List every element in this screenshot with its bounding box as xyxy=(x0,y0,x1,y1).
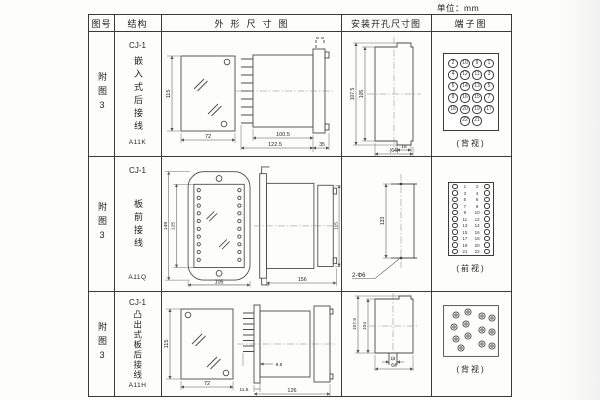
side-view: 11.5 9.5 126 xyxy=(237,305,337,396)
header-outline: 外形尺寸图 xyxy=(161,15,341,31)
terminal-dot xyxy=(238,235,241,238)
terminal-dot xyxy=(197,227,200,230)
terminal-circle: 4 xyxy=(448,70,458,80)
terminal-number: 17 xyxy=(460,236,470,241)
dim-total-length: 122.5 xyxy=(268,142,282,148)
outline-diagram-a11h: 115 72 11.5 xyxy=(161,291,341,396)
fig-no-label: 附图3 xyxy=(97,72,106,115)
cell-mounting-a11h: 107.5 104 14 64 xyxy=(341,291,431,396)
terminal-dot xyxy=(465,333,471,339)
terminal-circle: 13 xyxy=(472,82,482,92)
terminal-number: 13 xyxy=(460,223,470,228)
dim-front-width: 72 xyxy=(204,381,210,387)
terminal-dot xyxy=(238,219,241,222)
terminal-view-label: (前视) xyxy=(456,263,485,274)
header-terminal: 端子图 xyxy=(431,15,511,31)
latch-hook-icon xyxy=(316,38,324,48)
cell-terminal-a11q: 12345678910111213141516171819202122 (前视) xyxy=(431,156,511,291)
terminal-circle xyxy=(484,249,490,255)
mount-type-label: 嵌入式后接线 xyxy=(133,56,142,134)
terminal-dot xyxy=(479,313,485,319)
cell-terminal-a11h: (背视) xyxy=(431,291,511,396)
terminal-circle: 9 xyxy=(472,59,482,69)
terminal-circle xyxy=(484,203,490,209)
terminal-circle: 10 xyxy=(460,59,470,69)
terminal-circle xyxy=(452,242,458,248)
terminal-number: 20 xyxy=(472,243,482,248)
terminal-number: 11 xyxy=(460,217,470,222)
terminal-number: 18 xyxy=(472,236,482,241)
terminal-circle xyxy=(452,190,458,196)
terminal-pins xyxy=(243,313,254,352)
terminal-row: 34 xyxy=(449,190,493,196)
dim-hole-spacing: 133 xyxy=(380,217,386,226)
terminal-row: 1516 xyxy=(449,229,493,235)
datasheet-page: { "unit_label": "单位：mm", "headers": { "f… xyxy=(0,0,600,400)
terminal-block: 21091412113614135816157182019172221 xyxy=(443,53,499,131)
terminal-circle: 6 xyxy=(448,82,458,92)
side-view: 156 115 xyxy=(254,167,341,286)
terminal-block xyxy=(443,305,499,357)
cell-fig-no-a11q: 附图3 xyxy=(89,156,114,291)
model-code-label: A11K xyxy=(129,139,146,146)
terminal-number: 9 xyxy=(460,210,470,215)
terminal-dot xyxy=(238,188,241,191)
terminal-circle xyxy=(452,229,458,235)
terminal-number: 1 xyxy=(460,184,470,189)
outline-diagram-a11q: 149 125 105 xyxy=(161,158,341,289)
terminal-view-label: (背视) xyxy=(456,138,485,149)
dim-side-length: 156 xyxy=(298,277,307,283)
cell-fig-no-a11k: 附图3 xyxy=(89,31,114,156)
window-hatch-icon xyxy=(207,357,221,369)
dim-front-width: 72 xyxy=(205,134,211,140)
terminal-circle: 19 xyxy=(472,105,482,115)
terminal-dot xyxy=(453,336,459,342)
terminal-number: 4 xyxy=(472,191,482,196)
spec-table: 图号 结构 外形尺寸图 安装开孔尺寸图 端子图 附图3 CJ-1 嵌入式后接线 … xyxy=(88,14,512,397)
terminal-dot xyxy=(451,324,457,330)
terminal-dot xyxy=(238,196,241,199)
terminal-circle: 2 xyxy=(448,59,458,69)
terminal-circle: 12 xyxy=(460,70,470,80)
terminal-circle xyxy=(452,249,458,255)
mounting-hole-icon xyxy=(400,183,403,186)
terminal-dot xyxy=(453,312,459,318)
screw-hole-icon xyxy=(223,370,229,376)
screw-hole-icon xyxy=(185,312,191,318)
mount-type-label: 板前接线 xyxy=(133,199,142,251)
terminal-circle xyxy=(452,210,458,216)
terminal-dot xyxy=(197,212,200,215)
mounting-hole-icon xyxy=(400,257,403,260)
terminal-circle xyxy=(484,190,490,196)
terminal-circle xyxy=(452,236,458,242)
terminal-number: 22 xyxy=(472,249,482,254)
terminal-circle xyxy=(484,184,490,190)
terminal-dot xyxy=(197,196,200,199)
terminal-row: 412113 xyxy=(444,70,498,80)
terminal-circle: 20 xyxy=(460,105,470,115)
terminal-circle: 14 xyxy=(460,82,470,92)
window-hatch-icon xyxy=(194,79,208,91)
terminal-dot xyxy=(463,321,469,327)
dim-total-width: 64 xyxy=(391,363,397,369)
terminal-row: 1920 xyxy=(449,242,493,248)
terminal-circle xyxy=(484,229,490,235)
terminal-row: 2122 xyxy=(449,249,493,255)
terminal-circle: 16 xyxy=(460,93,470,103)
terminal-dot xyxy=(197,188,200,191)
model-label: CJ-1 xyxy=(129,41,146,50)
terminal-circle: 15 xyxy=(472,93,482,103)
dim-front-height: 115 xyxy=(166,90,172,99)
terminal-row: 1718 xyxy=(449,236,493,242)
terminal-circle: 18 xyxy=(448,105,458,115)
terminal-dot xyxy=(238,204,241,207)
hole-size-label: 2-Φ6 xyxy=(352,273,366,279)
terminal-circle: 8 xyxy=(448,93,458,103)
terminal-number: 14 xyxy=(472,223,482,228)
side-view: 100.5 122.5 35 xyxy=(235,38,335,152)
terminal-circle xyxy=(452,223,458,229)
terminal-row: 1112 xyxy=(449,216,493,222)
dim-outer-height: 107.5 xyxy=(350,88,356,101)
terminal-circle: 7 xyxy=(484,93,494,103)
terminal-dot xyxy=(197,243,200,246)
terminal-circle xyxy=(452,216,458,222)
dim-pin-length: 9.5 xyxy=(276,362,283,368)
model-code-label: A11Q xyxy=(128,274,146,281)
screw-hole-icon xyxy=(224,59,230,65)
header-mounting: 安装开孔尺寸图 xyxy=(341,15,431,31)
terminal-dot xyxy=(238,250,241,253)
terminal-dot xyxy=(479,341,485,347)
terminal-circle xyxy=(484,197,490,203)
dim-front-width: 105 xyxy=(215,280,224,286)
front-view: 115 72 xyxy=(166,56,235,143)
terminal-row: 910 xyxy=(449,210,493,216)
model-label: CJ-1 xyxy=(129,298,146,307)
terminal-number: 6 xyxy=(472,197,482,202)
terminal-number: 21 xyxy=(460,249,470,254)
screw-hole-icon xyxy=(216,176,222,182)
terminal-number: 7 xyxy=(460,204,470,209)
unit-label: 单位：mm xyxy=(437,2,479,14)
terminal-circle: 1 xyxy=(484,59,494,69)
mounting-diagram-a11h: 107.5 104 14 64 xyxy=(341,291,431,396)
terminal-number: 19 xyxy=(460,243,470,248)
terminal-dot xyxy=(238,243,241,246)
terminal-circle xyxy=(452,184,458,190)
dim-body-length: 100.5 xyxy=(276,132,290,138)
screw-hole-icon xyxy=(216,270,222,276)
terminal-dot xyxy=(197,204,200,207)
terminal-number: 12 xyxy=(472,217,482,222)
dim-total-width: (64) xyxy=(390,148,399,154)
fig-no-label: 附图3 xyxy=(97,202,106,245)
terminal-row: 816157 xyxy=(444,93,498,103)
mounting-diagram-a11q: 133 2-Φ6 xyxy=(341,156,431,291)
header-structure: 结构 xyxy=(114,15,161,31)
cell-mounting-a11q: 133 2-Φ6 xyxy=(341,156,431,291)
dim-outer-height: 107.5 xyxy=(352,318,358,330)
terminal-row: 2221 xyxy=(444,116,498,126)
terminal-dot xyxy=(489,329,495,335)
terminal-row: 1314 xyxy=(449,223,493,229)
window-hatch-icon xyxy=(219,239,230,249)
terminal-row: 56 xyxy=(449,197,493,203)
terminal-number: 8 xyxy=(472,204,482,209)
cell-fig-no-a11h: 附图3 xyxy=(89,291,114,396)
dim-inner-height: 104 xyxy=(362,322,368,330)
terminal-number: 5 xyxy=(460,197,470,202)
terminal-circle xyxy=(484,236,490,242)
terminal-dot xyxy=(479,327,485,333)
front-view: 149 125 105 xyxy=(163,172,250,287)
terminal-row: 12 xyxy=(449,184,493,190)
terminal-circle xyxy=(452,203,458,209)
terminal-dot xyxy=(465,309,471,315)
terminal-dot xyxy=(238,258,241,261)
terminal-circle: 11 xyxy=(472,70,482,80)
terminal-dot xyxy=(197,258,200,261)
terminal-dot xyxy=(489,315,495,321)
terminal-dot xyxy=(489,343,495,349)
terminal-circle: 21 xyxy=(472,116,482,126)
dim-front-height: 115 xyxy=(164,340,170,349)
terminal-block: 12345678910111213141516171819202122 xyxy=(448,182,494,256)
cell-structure-a11q: CJ-1 板前接线 A11Q xyxy=(114,156,161,291)
terminal-row: 18201917 xyxy=(444,105,498,115)
terminal-circle xyxy=(484,242,490,248)
cell-terminal-a11k: 21091412113614135816157182019172221 (背视) xyxy=(431,31,511,156)
terminal-number: 2 xyxy=(472,184,482,189)
cell-mounting-a11k: 107.5 105 16 (64) xyxy=(341,31,431,156)
window-hatch-icon xyxy=(206,211,217,221)
terminal-dot xyxy=(458,345,464,351)
dim-slot-width: 14 xyxy=(390,356,396,361)
terminal-circle xyxy=(484,216,490,222)
terminal-dot xyxy=(238,212,241,215)
dim-inner-height: 105 xyxy=(359,90,365,99)
terminal-circle: 17 xyxy=(484,105,494,115)
cell-structure-a11h: CJ-1 凸出式板后接线 A11H xyxy=(114,291,161,396)
screw-hole-icon xyxy=(221,121,227,127)
front-view: 115 72 xyxy=(164,309,233,390)
terminal-number: 16 xyxy=(472,230,482,235)
terminal-row: 78 xyxy=(449,203,493,209)
terminal-dot xyxy=(197,219,200,222)
cell-outline-a11h: 115 72 11.5 xyxy=(161,291,341,396)
terminal-number: 3 xyxy=(460,191,470,196)
terminal-circle: 3 xyxy=(484,70,494,80)
dim-tab-width: 16 xyxy=(401,144,407,150)
terminal-row: 614135 xyxy=(444,82,498,92)
terminal-number: 15 xyxy=(460,230,470,235)
terminal-circle: 22 xyxy=(460,116,470,126)
terminal-row: 21091 xyxy=(444,59,498,69)
terminal-dot xyxy=(197,235,200,238)
window-hatch-icon xyxy=(192,334,206,346)
cell-outline-a11k: 115 72 100.5 xyxy=(161,31,341,156)
cell-outline-a11q: 149 125 105 xyxy=(161,156,341,291)
mount-type-label: 凸出式板后接线 xyxy=(133,310,142,380)
mounting-diagram-a11k: 107.5 105 16 (64) xyxy=(341,31,431,156)
dim-total-length: 126 xyxy=(287,388,296,394)
terminal-dot xyxy=(197,250,200,253)
dim-plate-thickness: 11.5 xyxy=(240,387,249,393)
header-fig-no: 图号 xyxy=(89,15,114,31)
terminal-circle xyxy=(452,197,458,203)
terminal-number: 10 xyxy=(472,210,482,215)
model-label: CJ-1 xyxy=(129,166,146,175)
fig-no-label: 附图3 xyxy=(97,322,106,365)
terminal-circle xyxy=(484,223,490,229)
outline-diagram-a11k: 115 72 100.5 xyxy=(161,31,341,156)
model-code-label: A11H xyxy=(129,382,147,389)
dim-inner-height: 125 xyxy=(171,222,177,230)
dim-outer-height: 149 xyxy=(163,222,169,230)
dim-flange-width: 35 xyxy=(319,142,325,148)
window-hatch-icon xyxy=(208,104,222,116)
terminal-view-label: (背视) xyxy=(456,364,485,375)
terminal-dot xyxy=(238,227,241,230)
terminal-circle xyxy=(484,210,490,216)
terminal-circle: 5 xyxy=(484,82,494,92)
cell-structure-a11k: CJ-1 嵌入式后接线 A11K xyxy=(114,31,161,156)
dim-side-height: 115 xyxy=(334,222,340,230)
